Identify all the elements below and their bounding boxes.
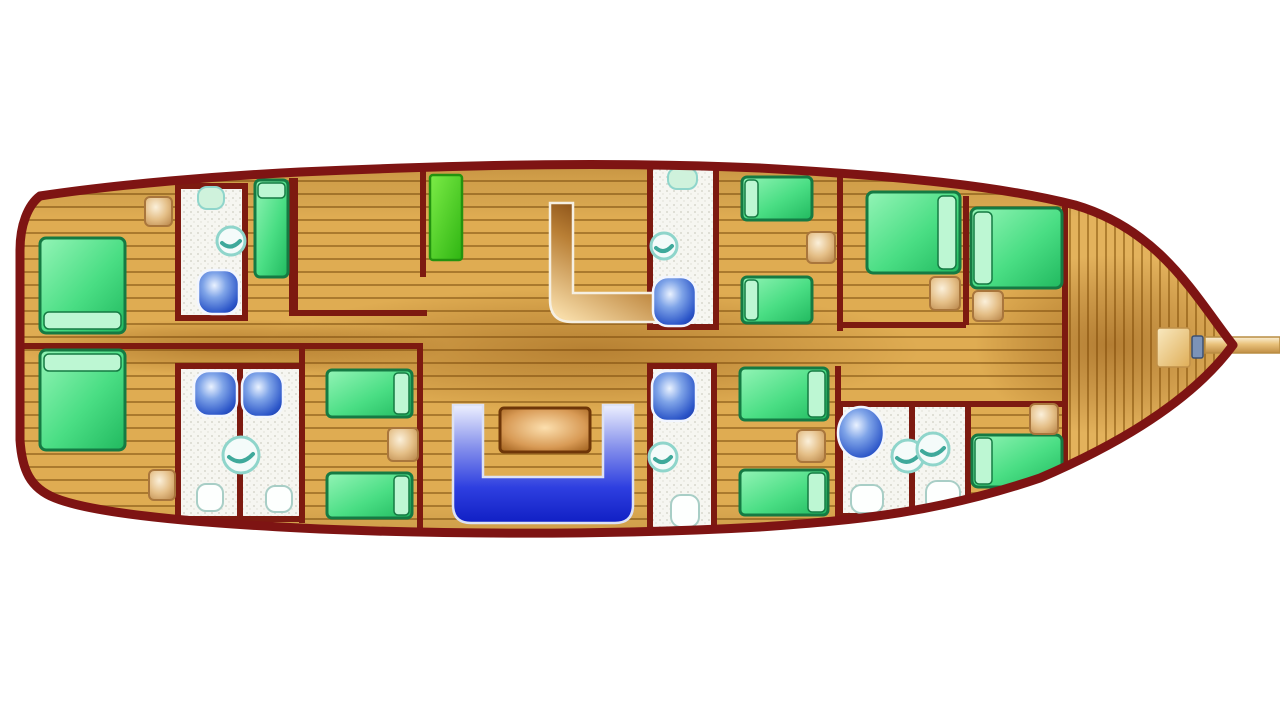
toilet [198,187,224,209]
nightstand [930,277,960,310]
port-twin-bed-lower [742,277,812,323]
nightstand [807,232,835,263]
nightstand [1030,404,1058,434]
deck-plan-canvas [0,0,1280,720]
starboard-twin-aft-bed-upper [327,370,412,417]
bowsprit [1205,337,1280,353]
nightstand [797,430,825,462]
port-forward-double-bed-2 [971,208,1062,288]
nightstand [145,197,172,226]
toilet [851,485,883,513]
dinette-table [500,408,590,452]
wash-basin [198,270,239,314]
toilet [668,168,697,189]
wash-basin [242,371,283,417]
wash-basin [653,277,696,326]
port-forward-double-bed-1 [867,192,960,273]
toilet [197,484,223,511]
nightstand [149,470,175,500]
nightstand [973,291,1003,321]
starboard-twin-mid-bed-lower [740,470,828,515]
wash-basin [652,371,696,421]
toilet [266,486,292,512]
wash-basin [194,371,237,416]
boat-plan-illustration [0,0,1280,720]
galley-counter [430,175,462,260]
nightstand [388,428,418,461]
bow-hatch [1157,328,1190,367]
bow-fitting [1192,336,1203,358]
starboard-twin-aft-bed-lower [327,473,412,518]
port-twin-bed-upper [742,177,812,220]
toilet [671,495,699,527]
wash-basin [838,407,884,459]
stern-port-double-bed [40,238,125,333]
stern-starboard-double-bed [40,350,125,450]
port-single-bed [255,180,288,277]
starboard-twin-mid-bed-upper [740,368,828,420]
